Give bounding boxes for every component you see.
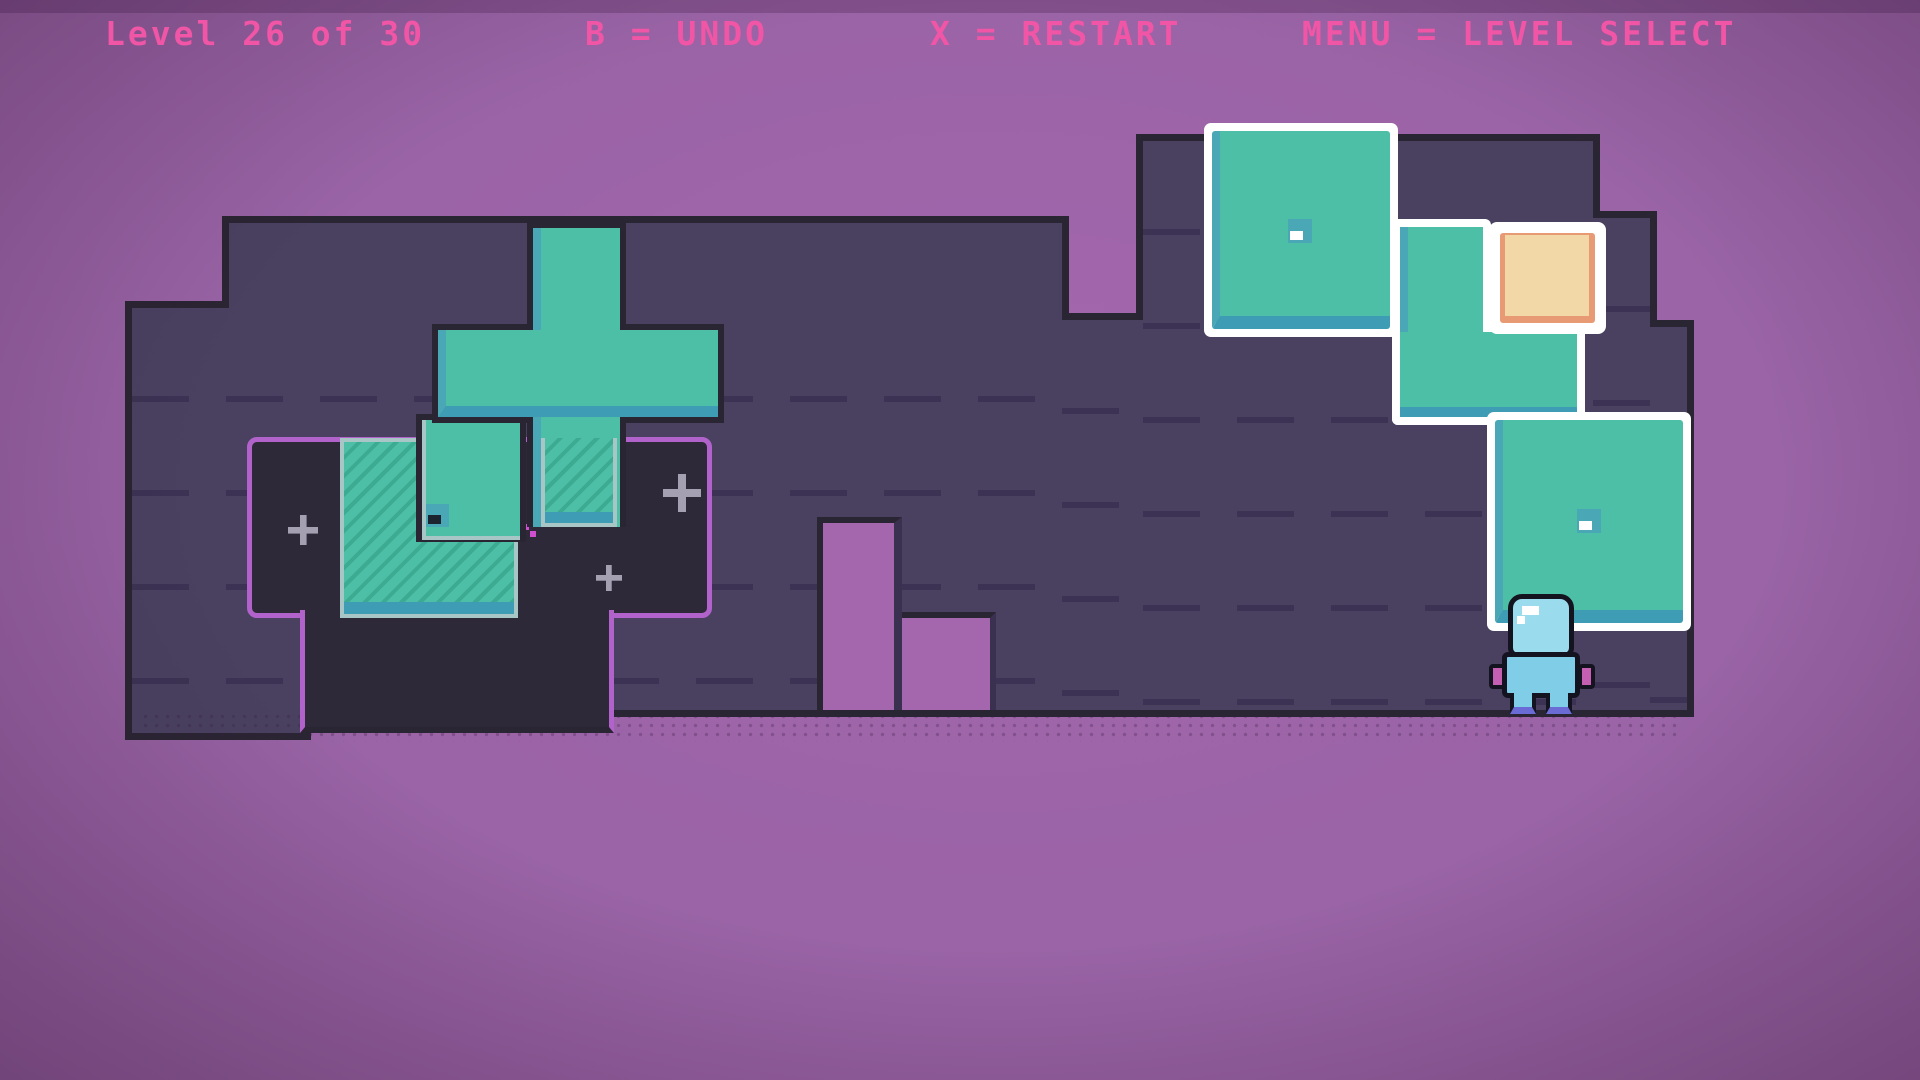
player-leg-left [1510,693,1536,714]
hud-menu-text: MENU = LEVEL SELECT [1302,14,1737,52]
floor-cutout [902,612,996,710]
square-eye-block-fill [1495,420,1683,623]
large-eye-block[interactable] [1204,123,1398,337]
small-eye-block[interactable] [422,420,520,540]
sparkle-icon [596,565,622,591]
target-zone-shade [344,602,514,614]
cross-block[interactable] [438,330,718,417]
floor [1062,320,1143,710]
sparkle-icon [663,474,701,512]
block-eye-icon [426,504,449,527]
block-pupil-icon [1290,231,1303,240]
pit-extension [300,610,614,733]
block-pupil-icon [1579,521,1592,530]
block-eye-icon [1577,509,1601,533]
hud-restart-text: X = RESTART [930,14,1182,52]
player-leg-right [1546,693,1572,714]
player-character[interactable] [1494,594,1590,714]
orange-block-fill [1500,233,1595,323]
top-shade [0,0,1920,13]
orange-block[interactable] [1489,222,1606,334]
hud-undo-text: B = UNDO [585,14,768,52]
block-eye-icon [1288,219,1312,243]
player-torso [1502,652,1580,698]
player-hand-right [1578,664,1595,689]
helmet-shine-icon [1517,616,1525,624]
l-block[interactable] [1400,332,1577,417]
sparkle-icon [288,515,318,545]
floor-cutout [817,517,902,710]
game-screen[interactable]: Level 26 of 30 B = UNDO X = RESTART MENU… [0,0,1920,1080]
large-eye-block-fill [1212,131,1390,329]
target-zone-shade [545,512,613,523]
target-zone-under-cross [541,438,617,527]
helmet-shine-icon [1522,606,1539,615]
block-pupil-icon [428,515,441,524]
hud-level-text: Level 26 of 30 [105,14,425,52]
player-helmet [1508,594,1574,658]
player-hand-left [1489,664,1506,689]
